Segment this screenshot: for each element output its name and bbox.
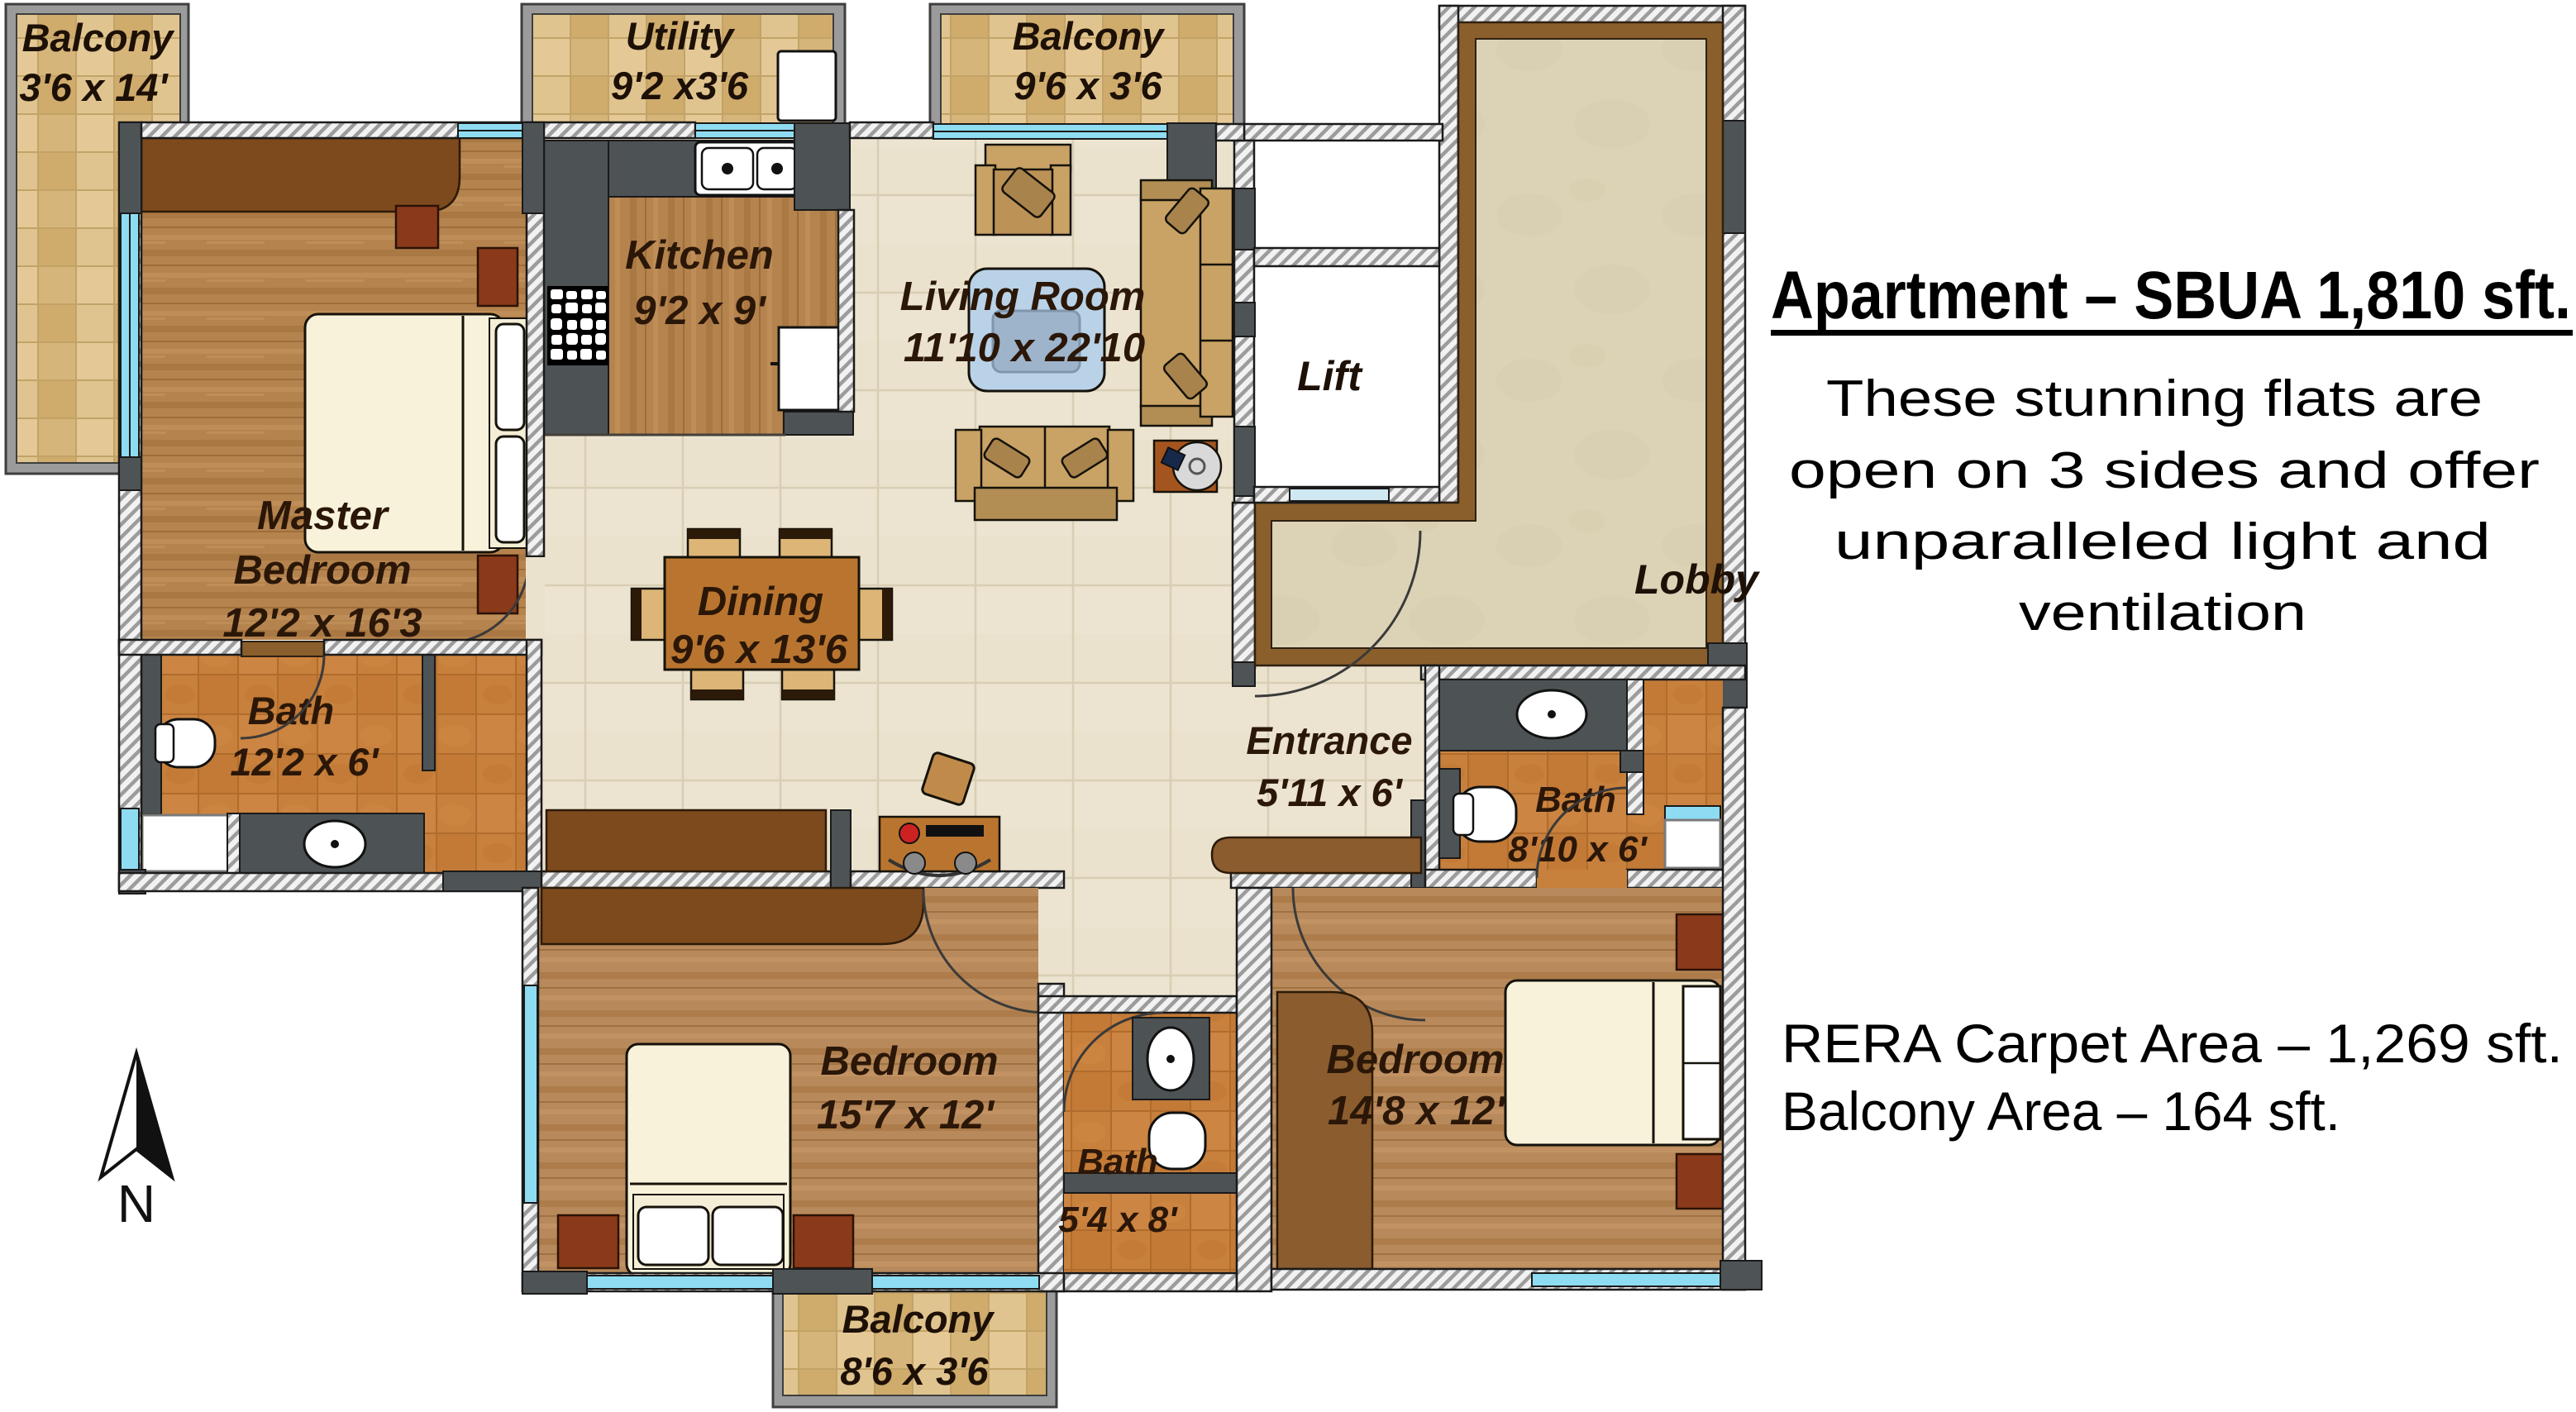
svg-text:Bedroom: Bedroom: [1326, 1038, 1504, 1082]
svg-text:Balcony: Balcony: [842, 1297, 996, 1341]
svg-text:Balcony: Balcony: [22, 16, 176, 60]
svg-text:RERA Carpet Area – 1,269 sft.: RERA Carpet Area – 1,269 sft.: [1782, 1013, 2563, 1074]
svg-text:Apartment – SBUA 1,810 sft.: Apartment – SBUA 1,810 sft.: [1771, 258, 2571, 333]
svg-text:3'6 x 14': 3'6 x 14': [19, 65, 169, 109]
svg-text:12'2 x 6': 12'2 x 6': [230, 740, 379, 784]
svg-text:open on 3 sides and offer: open on 3 sides and offer: [1789, 442, 2540, 499]
svg-text:14'8 x 12': 14'8 x 12': [1328, 1089, 1505, 1133]
svg-text:Bath: Bath: [1535, 780, 1616, 820]
svg-text:Bedroom: Bedroom: [233, 548, 411, 593]
svg-text:5'4 x 8': 5'4 x 8': [1058, 1200, 1178, 1240]
svg-text:Balcony: Balcony: [1013, 14, 1166, 58]
svg-text:9'6 x 13'6: 9'6 x 13'6: [670, 627, 848, 672]
svg-text:Bath: Bath: [248, 689, 334, 732]
svg-text:Bath: Bath: [1077, 1142, 1158, 1182]
svg-text:N: N: [117, 1174, 155, 1233]
svg-text:9'2 x 9': 9'2 x 9': [633, 289, 766, 333]
svg-text:Master: Master: [257, 494, 390, 538]
svg-text:Entrance: Entrance: [1246, 718, 1412, 762]
svg-text:Kitchen: Kitchen: [625, 233, 774, 278]
svg-text:8'6 x 3'6: 8'6 x 3'6: [840, 1349, 989, 1393]
svg-text:5'11 x 6': 5'11 x 6': [1257, 770, 1404, 814]
svg-text:9'2 x3'6: 9'2 x3'6: [611, 64, 749, 107]
svg-text:Utility: Utility: [626, 14, 736, 58]
svg-text:These stunning flats are: These stunning flats are: [1826, 370, 2483, 427]
svg-text:Lift: Lift: [1297, 353, 1363, 399]
svg-text:Dining: Dining: [698, 580, 823, 624]
svg-text:11'10 x 22'10: 11'10 x 22'10: [904, 326, 1145, 370]
svg-text:9'6 x 3'6: 9'6 x 3'6: [1014, 64, 1162, 107]
svg-text:unparalleled light and: unparalleled light and: [1834, 513, 2491, 570]
svg-text:8'10 x 6': 8'10 x 6': [1508, 829, 1648, 870]
svg-text:Living Room: Living Room: [900, 274, 1146, 319]
svg-text:Balcony Area – 164 sft.: Balcony Area – 164 sft.: [1782, 1080, 2340, 1142]
svg-text:15'7 x 12': 15'7 x 12': [817, 1093, 995, 1138]
svg-text:Lobby: Lobby: [1634, 556, 1760, 603]
svg-text:ventilation: ventilation: [2019, 584, 2306, 642]
svg-text:Bedroom: Bedroom: [820, 1039, 998, 1084]
